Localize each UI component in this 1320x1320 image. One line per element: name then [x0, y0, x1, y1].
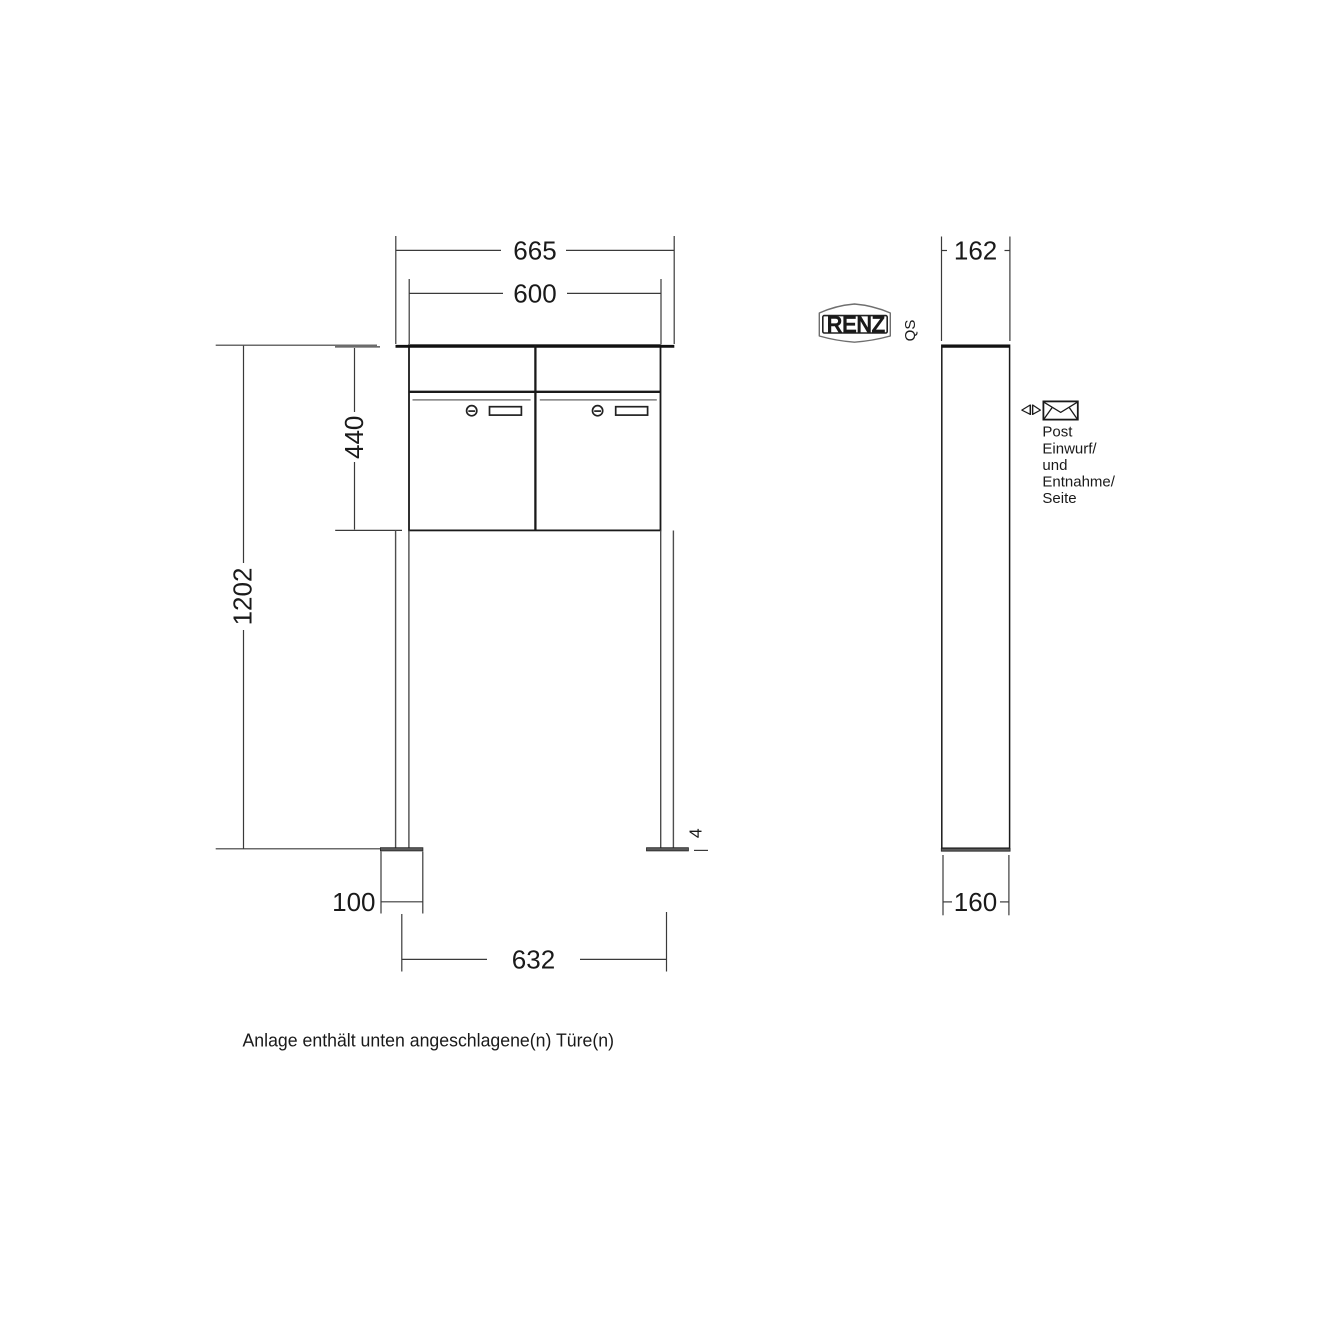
svg-text:1202: 1202 — [228, 568, 258, 626]
svg-text:RENZ: RENZ — [827, 312, 885, 337]
svg-text:Einwurf/: Einwurf/ — [1042, 440, 1097, 457]
svg-text:Post: Post — [1042, 424, 1073, 441]
svg-text:Anlage enthält unten angeschla: Anlage enthält unten angeschlagene(n) Tü… — [243, 1030, 615, 1050]
svg-text:600: 600 — [513, 279, 556, 309]
svg-text:162: 162 — [954, 236, 997, 266]
svg-text:665: 665 — [513, 236, 556, 266]
svg-text:Seite: Seite — [1042, 490, 1076, 507]
svg-text:632: 632 — [512, 945, 555, 975]
svg-text:QS: QS — [902, 320, 919, 342]
svg-text:4: 4 — [686, 828, 706, 838]
svg-text:100: 100 — [332, 887, 375, 917]
svg-text:und: und — [1042, 457, 1067, 474]
svg-text:440: 440 — [339, 416, 369, 459]
svg-text:160: 160 — [954, 887, 997, 917]
svg-text:Entnahme/: Entnahme/ — [1042, 474, 1115, 491]
